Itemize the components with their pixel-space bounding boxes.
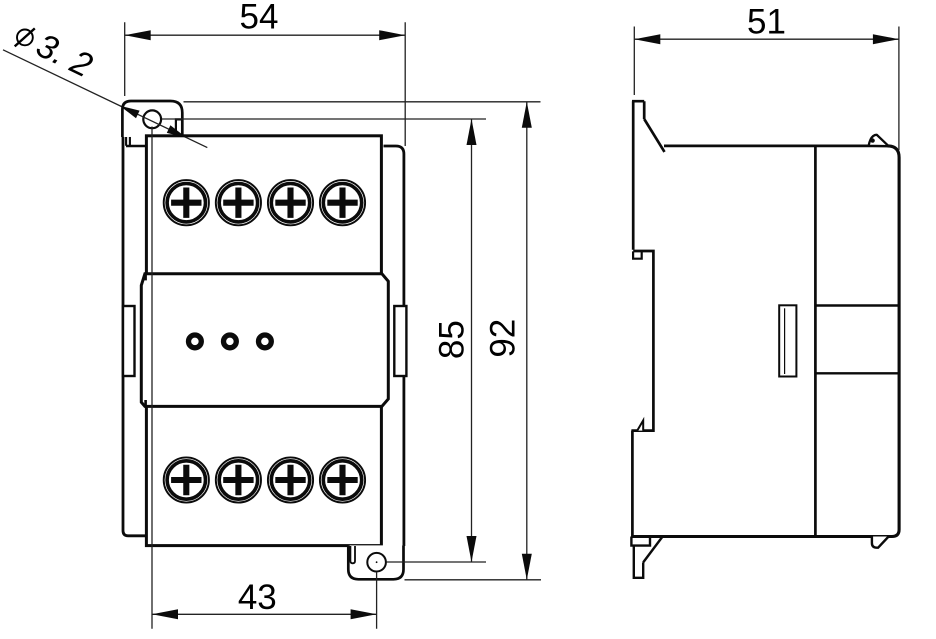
svg-text:92: 92 bbox=[484, 319, 523, 358]
svg-text:54: 54 bbox=[240, 0, 279, 37]
svg-text:51: 51 bbox=[747, 3, 786, 42]
svg-text:43: 43 bbox=[238, 578, 277, 617]
svg-text:85: 85 bbox=[432, 320, 471, 359]
